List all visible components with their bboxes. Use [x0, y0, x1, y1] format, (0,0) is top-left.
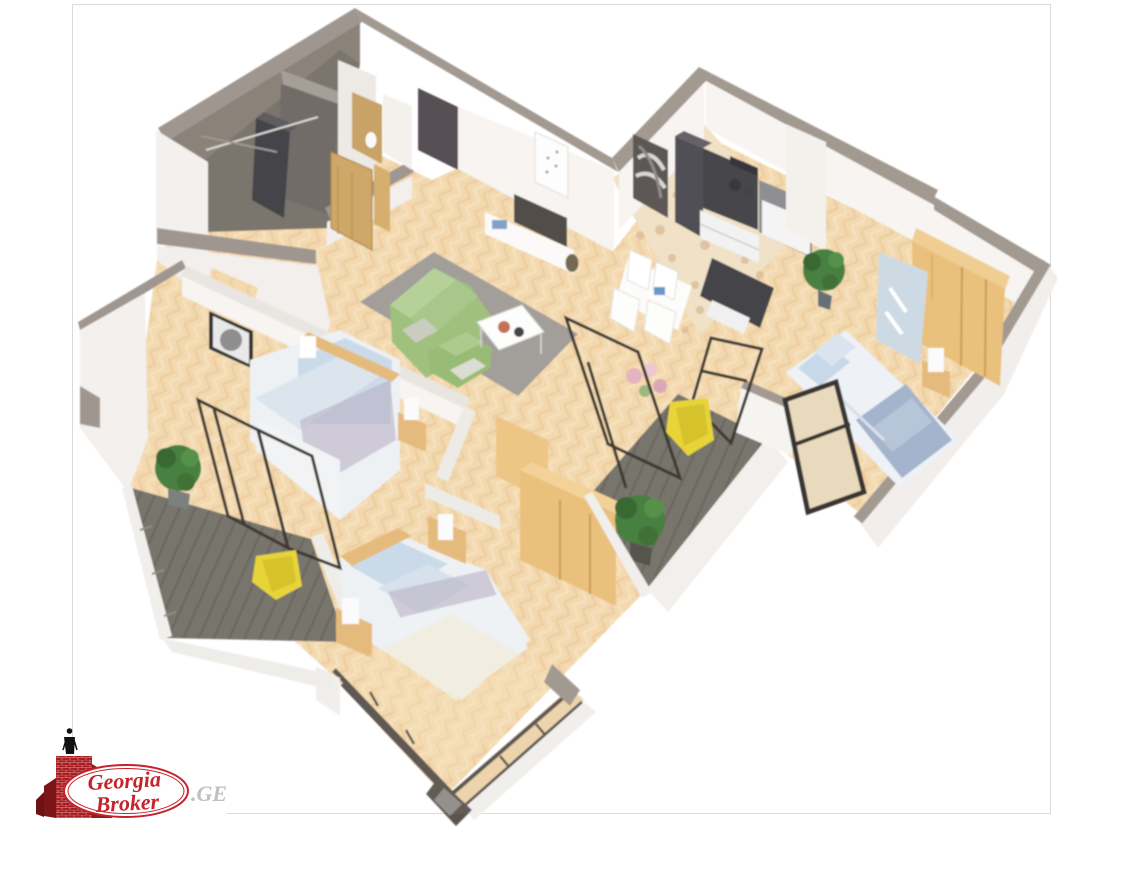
svg-text:Broker: Broker — [94, 789, 160, 817]
svg-text:.GE: .GE — [191, 781, 227, 806]
